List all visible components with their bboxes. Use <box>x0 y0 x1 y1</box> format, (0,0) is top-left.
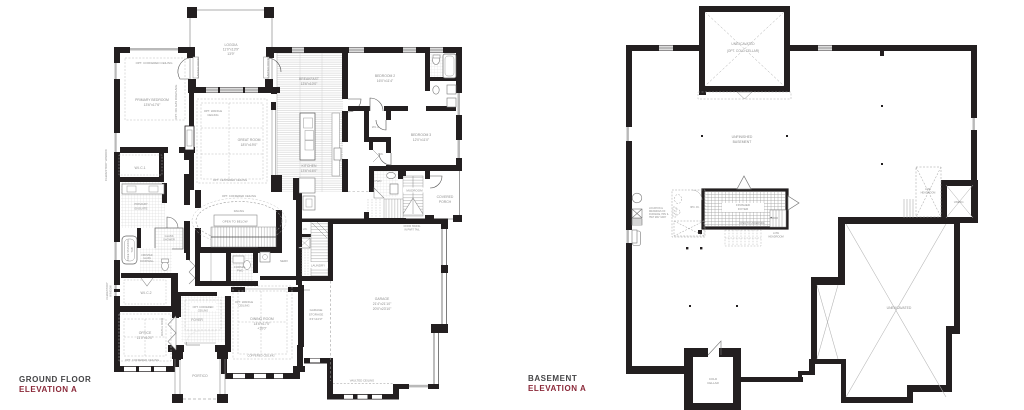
svg-text:BASEMENT: BASEMENT <box>733 140 752 144</box>
svg-text:WINDOW: WINDOW <box>109 285 113 297</box>
svg-text:GARAGE: GARAGE <box>310 308 323 312</box>
svg-text:3PC. R.I.: 3PC. R.I. <box>690 206 700 209</box>
svg-text:13'6"x17'6": 13'6"x17'6" <box>144 103 162 107</box>
svg-text:DOUBLE DOOR: DOUBLE DOOR <box>161 318 164 337</box>
svg-text:GREAT ROOM: GREAT ROOM <box>238 138 261 142</box>
svg-text:LAUNDRY: LAUNDRY <box>311 264 325 268</box>
svg-text:18'0"x19'0": 18'0"x19'0" <box>241 143 259 147</box>
svg-text:SHOWER: SHOWER <box>163 238 175 242</box>
svg-text:W.I.C.: W.I.C. <box>372 125 380 129</box>
svg-text:OPT. COFFERED CEILING: OPT. COFFERED CEILING <box>136 61 174 65</box>
svg-text:14'6"x17'0": 14'6"x17'0" <box>254 322 272 326</box>
svg-text:MUDROOM: MUDROOM <box>406 189 423 193</box>
svg-text:GLASS: GLASS <box>143 257 151 260</box>
svg-text:LOW: LOW <box>773 231 779 235</box>
svg-text:PRIMARY BEDROOM: PRIMARY BEDROOM <box>135 98 169 102</box>
svg-text:UNEXC.: UNEXC. <box>954 200 965 204</box>
svg-text:UNFINISHED: UNFINISHED <box>732 135 753 139</box>
svg-text:TUB: TUB <box>130 247 134 252</box>
svg-text:12'0"x11'0": 12'0"x11'0" <box>413 138 430 142</box>
svg-text:FOYER: FOYER <box>191 318 203 322</box>
svg-text:CLERESTORY WINDOW: CLERESTORY WINDOW <box>104 149 108 181</box>
svg-text:20'0"x23'10": 20'0"x23'10" <box>373 307 392 311</box>
svg-text:BREAKFAST: BREAKFAST <box>299 77 319 81</box>
svg-text:13'6"x10'0": 13'6"x10'0" <box>301 82 319 86</box>
svg-text:KITCHEN: KITCHEN <box>302 164 317 168</box>
svg-text:OPEN TO BELOW: OPEN TO BELOW <box>222 220 247 224</box>
svg-text:OPT. DN. GAS FIREPLACE: OPT. DN. GAS FIREPLACE <box>174 84 178 119</box>
svg-text:CEILING: CEILING <box>207 113 218 117</box>
svg-text:BEDROOM 3: BEDROOM 3 <box>411 133 431 137</box>
svg-text:CELLAR: CELLAR <box>707 381 720 385</box>
svg-text:(OPT. COLD CELLAR): (OPT. COLD CELLAR) <box>727 49 759 53</box>
svg-text:HEADROOM: HEADROOM <box>768 235 783 239</box>
svg-text:HEADROOM: HEADROOM <box>921 192 936 195</box>
svg-text:PORCH: PORCH <box>439 200 452 204</box>
svg-text:LOCATION &: LOCATION & <box>649 207 663 210</box>
svg-text:W.I.C.1: W.I.C.1 <box>134 166 145 170</box>
svg-text:COVERED: COVERED <box>437 195 454 199</box>
svg-text:COFFERED CEILING: COFFERED CEILING <box>247 354 274 358</box>
svg-text:DRAWINGS OF: DRAWINGS OF <box>649 210 666 213</box>
svg-text:PWD: PWD <box>375 179 383 183</box>
svg-text:OPT. CENTERED CEILING: OPT. CENTERED CEILING <box>213 178 247 182</box>
svg-text:21'4"x21'10": 21'4"x21'10" <box>373 302 392 306</box>
svg-text:DINING ROOM: DINING ROOM <box>250 317 274 321</box>
svg-text:OPEN TO UNDERSIDE: OPEN TO UNDERSIDE <box>739 222 765 225</box>
svg-text:GARDEN DOOR: GARDEN DOOR <box>196 57 200 78</box>
svg-text:UNEXCAVATED: UNEXCAVATED <box>731 42 755 46</box>
svg-text:FURNACE, HRV &: FURNACE, HRV & <box>649 213 669 216</box>
svg-text:GARDEN DOOR: GARDEN DOOR <box>266 57 270 78</box>
svg-text:6'4"x10'3": 6'4"x10'3" <box>309 317 322 321</box>
svg-text:16'0"x11'4": 16'0"x11'4" <box>377 79 394 83</box>
svg-text:PORTICO: PORTICO <box>192 374 208 378</box>
svg-text:11'0"x13'9": 11'0"x13'9" <box>223 48 240 52</box>
svg-text:FREE STANDING: FREE STANDING <box>126 240 130 261</box>
svg-text:CEILING: CEILING <box>198 309 208 313</box>
svg-text:HWT MAY VARY: HWT MAY VARY <box>649 216 667 219</box>
svg-text:STORAGE: STORAGE <box>309 313 324 317</box>
svg-text:PWD: PWD <box>237 269 244 273</box>
svg-text:CEILING: CEILING <box>238 304 249 308</box>
svg-text:FOYER: FOYER <box>738 207 749 211</box>
svg-text:11'0"x10'0": 11'0"x10'0" <box>137 336 154 340</box>
svg-text:LIN.: LIN. <box>303 228 308 231</box>
svg-text:OPT. COFFERED CEILING: OPT. COFFERED CEILING <box>222 194 256 198</box>
svg-text:W.I.C.2: W.I.C.2 <box>140 291 151 295</box>
svg-text:GARAGE: GARAGE <box>375 297 390 301</box>
svg-text:PRIMARY: PRIMARY <box>134 202 148 206</box>
svg-text:GLASS: GLASS <box>165 234 174 238</box>
svg-text:13'6"x16'0": 13'6"x16'0" <box>301 169 319 173</box>
svg-text:IN PART TAIL: IN PART TAIL <box>404 229 420 232</box>
svg-text:VAULTED CEILING: VAULTED CEILING <box>350 379 374 383</box>
svg-text:CLERESTORY: CLERESTORY <box>105 282 109 300</box>
svg-text:UNEXCAVATED: UNEXCAVATED <box>887 306 912 310</box>
svg-text:OPT. COFFERED: OPT. COFFERED <box>193 305 214 309</box>
svg-text:SERV: SERV <box>280 259 288 263</box>
svg-text:DOOR/WALL: DOOR/WALL <box>140 260 154 263</box>
svg-text:OPT. COFFERED CEILING: OPT. COFFERED CEILING <box>125 358 159 362</box>
svg-text:ENSUITE: ENSUITE <box>134 207 147 211</box>
svg-text:13'9": 13'9" <box>227 52 235 56</box>
svg-text:OFFICE: OFFICE <box>139 331 152 335</box>
svg-text:LOGGIA: LOGGIA <box>224 43 238 47</box>
svg-text:BEDROOM 2: BEDROOM 2 <box>375 74 395 78</box>
svg-text:+16'0": +16'0" <box>257 327 267 331</box>
svg-text:RAILING: RAILING <box>234 209 244 213</box>
svg-text:FROSTED: FROSTED <box>142 255 153 257</box>
